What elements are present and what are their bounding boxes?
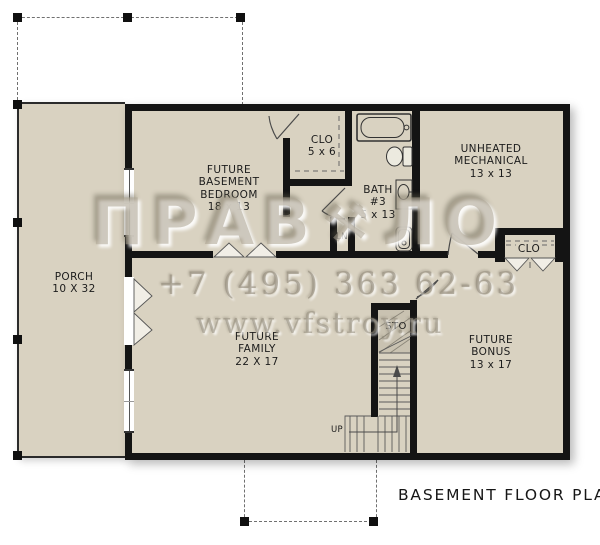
storage-label: STO — [385, 321, 407, 333]
wall — [371, 303, 417, 310]
porch-door-opening — [124, 277, 134, 345]
wall — [283, 138, 290, 217]
porch-post — [13, 451, 22, 460]
porch-post — [13, 335, 22, 344]
wall — [412, 111, 420, 258]
family-window — [124, 369, 134, 433]
closet-label: CLO5 x 6 — [308, 134, 336, 159]
up-label: UP — [331, 426, 343, 436]
wall — [410, 300, 417, 453]
basement-floor-plan: PORCH10 X 32 FUTUREBASEMENT BEDROOM18 x … — [0, 0, 600, 545]
bath-label: BATH#3 5 x 13 — [360, 184, 395, 221]
deck-outline-top — [17, 17, 243, 105]
deck-post — [240, 517, 249, 526]
porch-post — [13, 100, 22, 109]
porch-label: PORCH10 X 32 — [52, 271, 95, 296]
mechanical-label: UNHEATEDMECHANICAL 13 x 13 — [454, 143, 527, 180]
deck-post — [236, 13, 245, 22]
porch-post — [13, 218, 22, 227]
deck-post — [13, 13, 22, 22]
wall — [420, 251, 448, 258]
bedroom-window — [124, 168, 134, 237]
bedroom-label: FUTUREBASEMENT BEDROOM18 x 13 — [199, 164, 260, 213]
linen-label: LN — [336, 233, 348, 243]
deck-outline-bottom — [244, 460, 377, 522]
closet2-label: CLO — [516, 243, 542, 255]
deck-post — [123, 13, 132, 22]
wall — [478, 251, 495, 258]
wall — [132, 251, 213, 258]
wall — [555, 235, 565, 262]
wall — [495, 235, 505, 262]
wall — [276, 251, 420, 258]
wall — [371, 303, 378, 417]
wall — [283, 179, 352, 186]
wall — [345, 111, 352, 186]
wall — [495, 228, 570, 235]
family-label: FUTUREFAMILY 22 X 17 — [235, 331, 279, 368]
bonus-label: FUTUREBONUS 13 x 17 — [469, 334, 513, 371]
plan-title: BASEMENT FLOOR PLAN — [398, 486, 600, 504]
deck-post — [369, 517, 378, 526]
